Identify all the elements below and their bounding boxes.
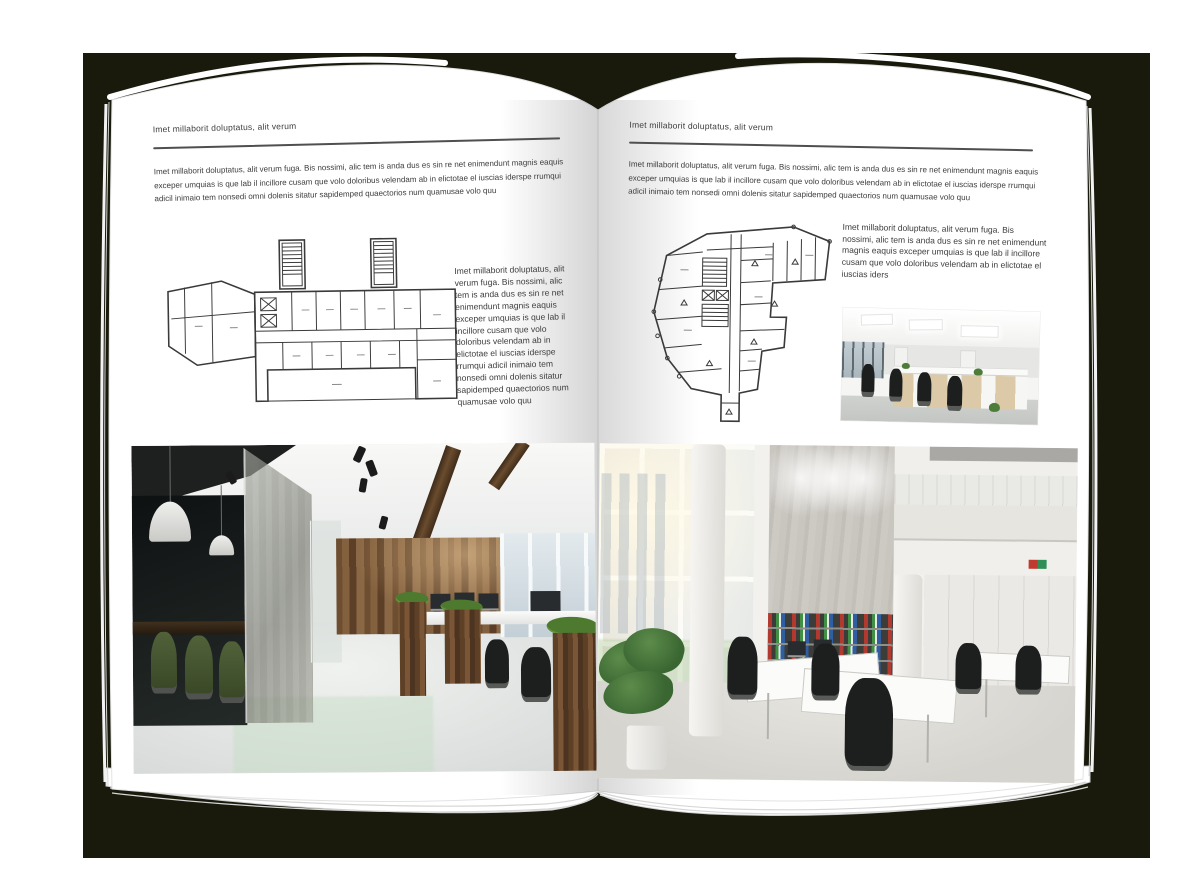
- monitor: [788, 641, 806, 657]
- floor-plan-left: [164, 233, 459, 416]
- office-chair-foreground: [844, 678, 893, 771]
- office-chair: [727, 637, 758, 700]
- glass-railing: [894, 474, 1077, 506]
- magazine-mockup: Imet millaborit doluptatus, alit verum I…: [0, 0, 1200, 891]
- wood-planter: [445, 609, 482, 683]
- right-header-rule: [629, 142, 1033, 151]
- office-chair: [485, 639, 509, 688]
- small-plant: [974, 368, 983, 375]
- right-side-column: Imet millaborit doluptatus, alit verum f…: [841, 222, 1047, 284]
- office-chair: [947, 376, 963, 411]
- left-page: Imet millaborit doluptatus, alit verum I…: [125, 87, 612, 798]
- office-chair: [1015, 646, 1042, 695]
- conference-table: [133, 621, 247, 635]
- round-column: [689, 444, 726, 736]
- office-chair: [889, 368, 903, 401]
- office-chair: [521, 647, 551, 702]
- plant-pot: [626, 725, 666, 769]
- mezzanine-slot: [930, 447, 1078, 463]
- left-side-column: Imet millaborit doluptatus, alit verum f…: [454, 263, 571, 409]
- right-page-header: Imet millaborit doluptatus, alit verum: [629, 120, 773, 133]
- green-chair: [151, 632, 177, 694]
- office-chair: [861, 364, 875, 397]
- office-chair: [811, 643, 840, 700]
- left-header-rule: [153, 137, 560, 148]
- ceiling-light: [961, 325, 999, 338]
- right-intro-paragraph: Imet millaborit doluptatus, alit verum f…: [628, 158, 1043, 206]
- right-page: Imet millaborit doluptatus, alit verum I…: [585, 95, 1098, 804]
- office-chair: [955, 643, 982, 694]
- safety-sign: [1029, 560, 1047, 569]
- office-photo-bright-atrium: [596, 443, 1077, 783]
- green-chair: [219, 641, 245, 703]
- office-photo-small: [841, 307, 1041, 424]
- balcony-fascia: [894, 504, 1077, 542]
- small-plant: [902, 363, 910, 369]
- office-chair: [917, 372, 932, 406]
- city-view: [600, 473, 672, 634]
- desk-leg: [985, 679, 987, 717]
- wood-planter: [399, 602, 426, 696]
- ceiling-light: [909, 319, 943, 330]
- left-intro-paragraph: Imet millaborit doluptatus, alit verum f…: [154, 155, 569, 206]
- floor-plan-right: [642, 219, 841, 428]
- ceiling-light: [861, 314, 893, 326]
- green-chair: [185, 635, 213, 699]
- office-photo-dark-loft: [131, 443, 596, 774]
- small-plant: [989, 403, 1000, 412]
- left-page-header: Imet millaborit doluptatus, alit verum: [153, 121, 297, 135]
